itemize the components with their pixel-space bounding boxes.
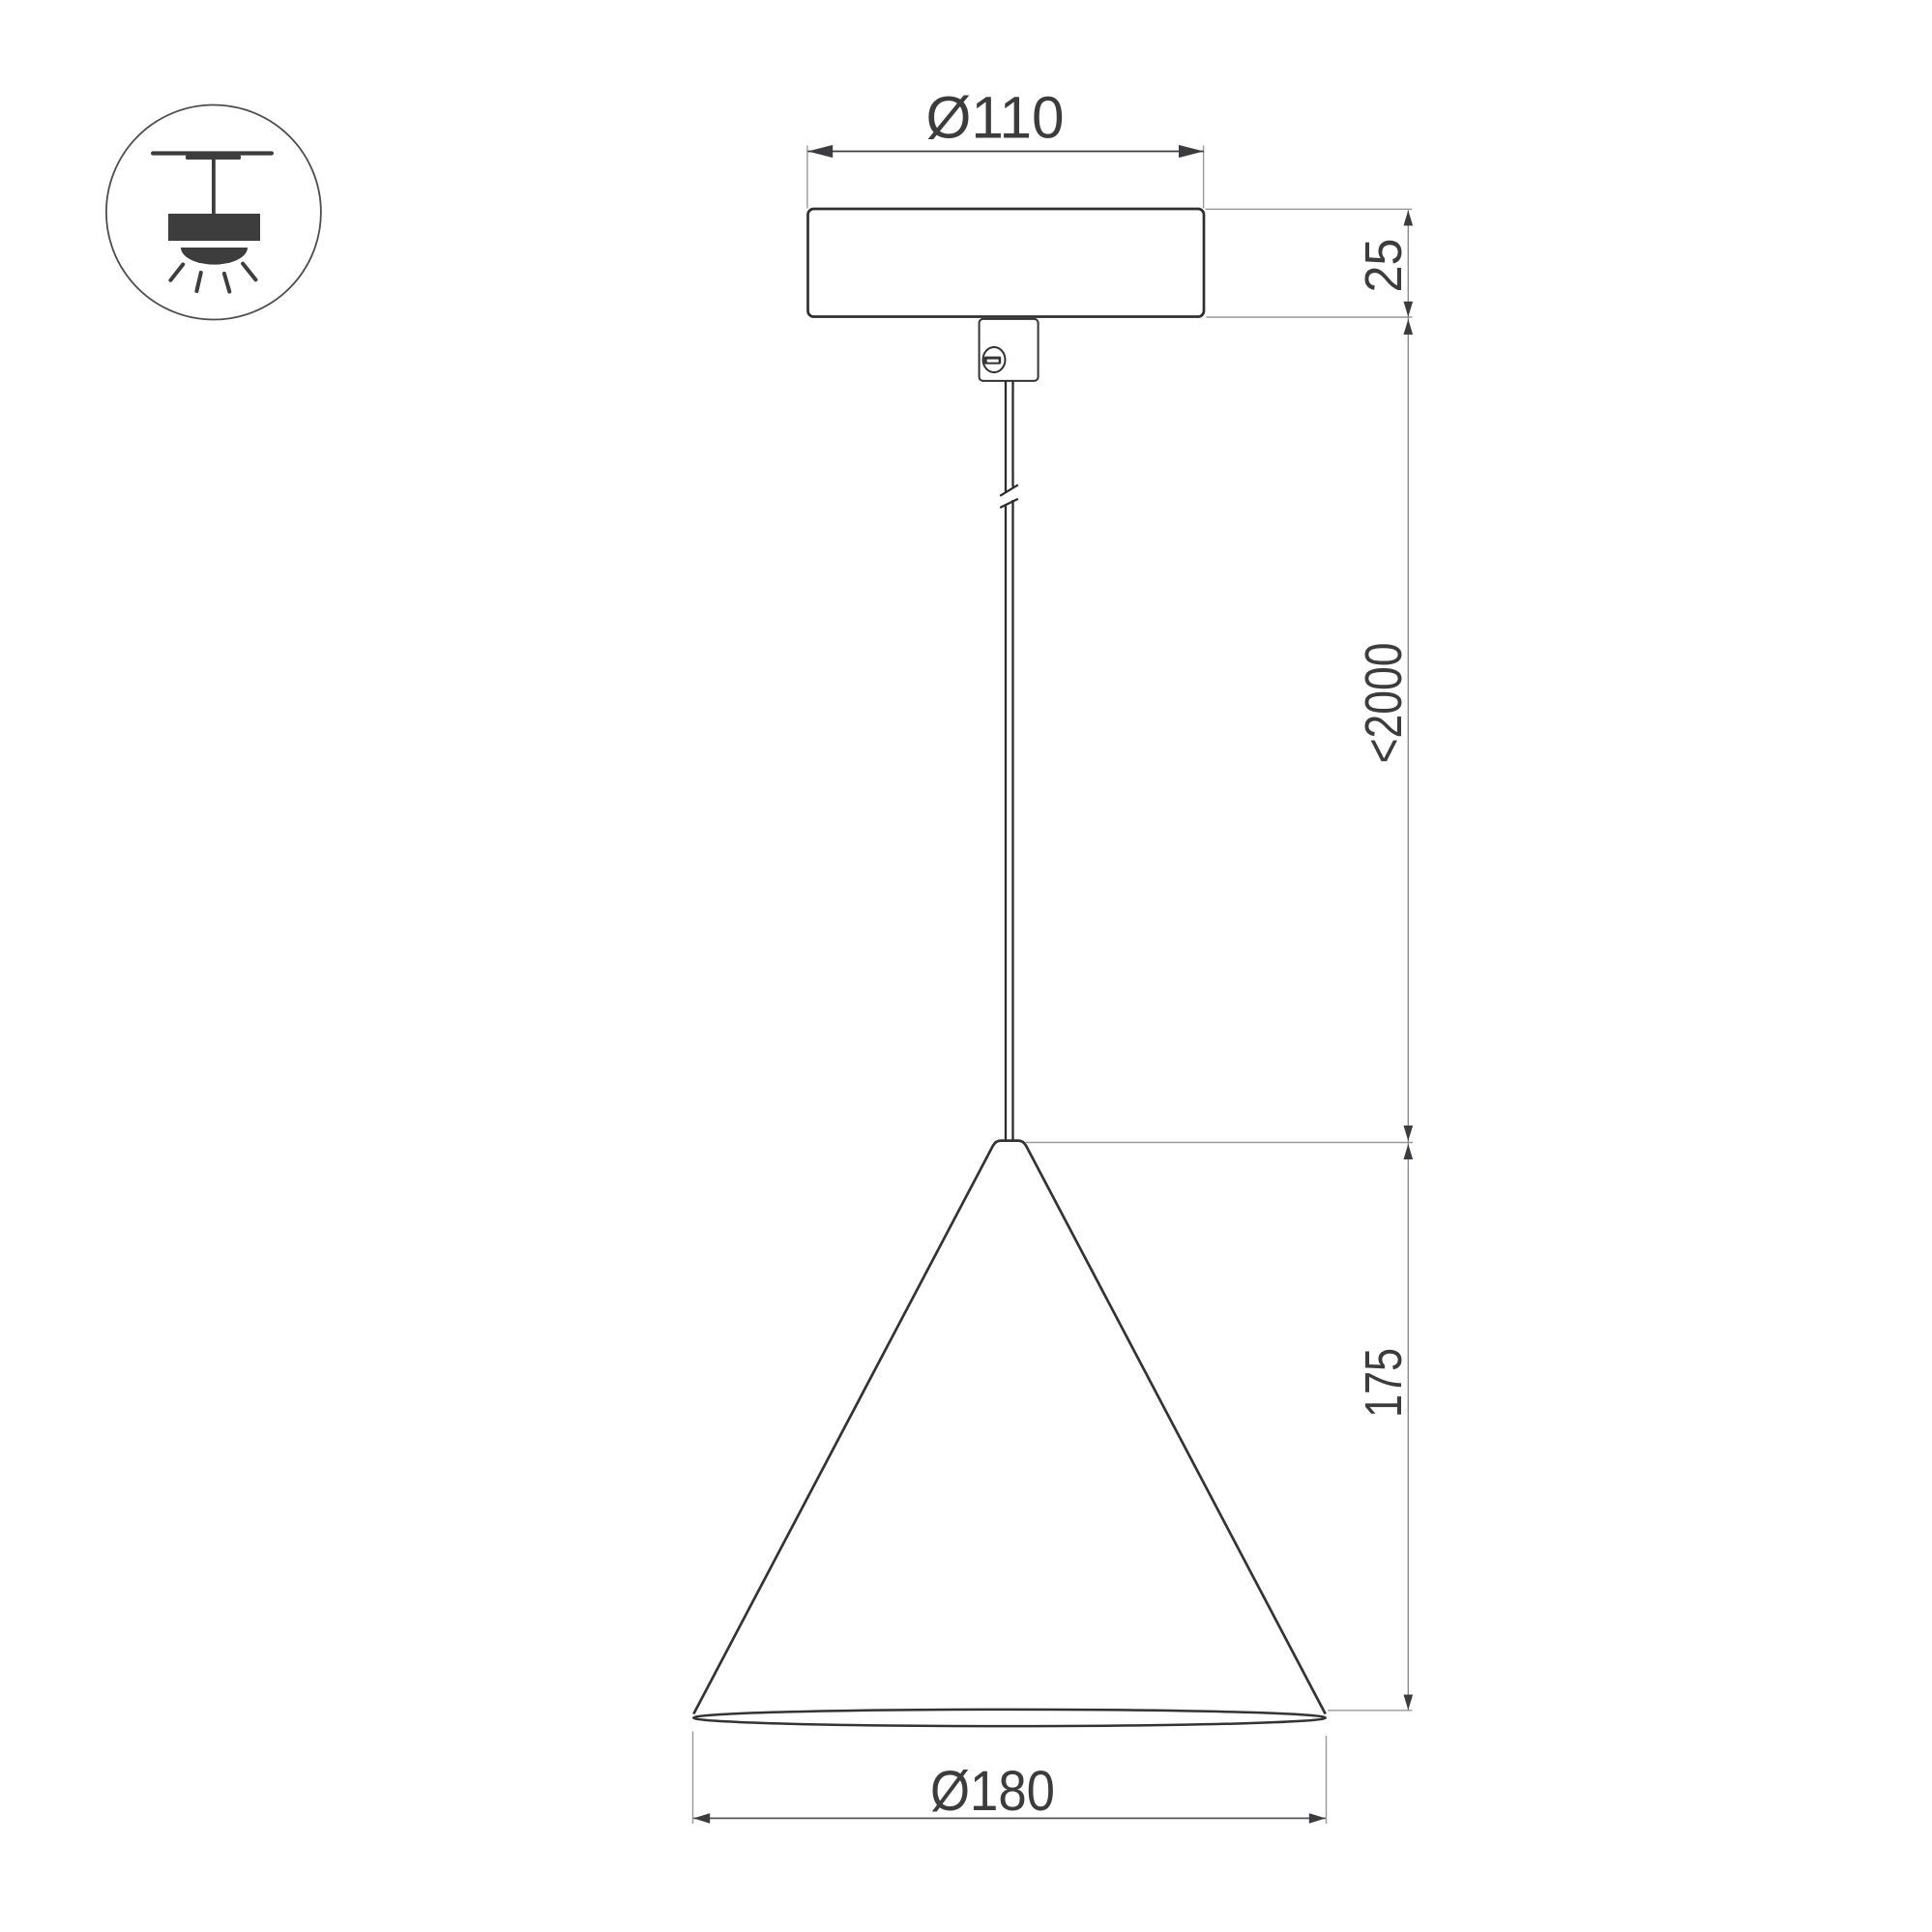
svg-text:Ø180: Ø180 bbox=[930, 1760, 1055, 1823]
svg-text:Ø110: Ø110 bbox=[926, 85, 1065, 151]
svg-text:<2000: <2000 bbox=[1355, 643, 1413, 764]
svg-text:25: 25 bbox=[1355, 239, 1413, 293]
svg-text:175: 175 bbox=[1355, 1348, 1413, 1418]
